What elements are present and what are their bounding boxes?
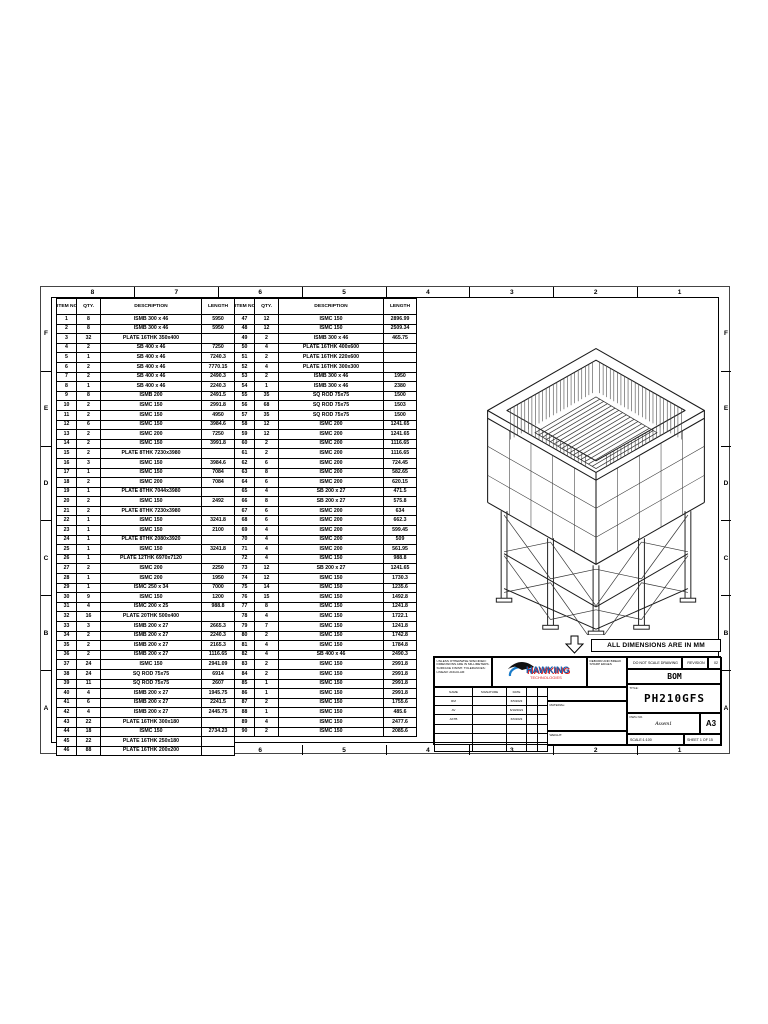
bom-cell-qty: 1 (77, 535, 101, 545)
title-block: UNLESS OTHERWISE SPECIFIED: DIMENSIONS A… (433, 656, 721, 745)
bom-cell-item: 72 (235, 554, 255, 564)
bom-cell-qty: 6 (77, 420, 101, 430)
weight-cell: WEIGHT: (547, 731, 627, 746)
zone-label: 4 (387, 287, 471, 297)
sign-cell (473, 733, 507, 742)
bom-cell-qty: 1 (77, 545, 101, 555)
bom-row: 814ISMC 1501784.8 (235, 641, 417, 651)
bom-cell-qty: 1 (77, 468, 101, 478)
bom-cell-length: 2665.3 (202, 622, 235, 632)
bom-cell-item: 70 (235, 535, 255, 545)
bom-cell-desc: PLATE 8THK 7230x3980 (101, 449, 202, 459)
bom-cell-qty: 14 (255, 583, 279, 593)
bom-cell-qty: 2 (77, 478, 101, 488)
base-plate (588, 631, 603, 635)
bom-cell-desc: PLATE 16THK 300x180 (101, 717, 202, 727)
bom-cell-item: 38 (57, 669, 77, 679)
drawing-line (546, 404, 607, 440)
bom-cell-length: 485.6 (384, 708, 417, 718)
zone-label: 7 (135, 287, 219, 297)
bom-cell-length: 561.95 (384, 545, 417, 555)
bom-cell-qty: 68 (255, 401, 279, 411)
bom-cell-desc: PLATE 16THK 220x600 (279, 353, 384, 363)
bom-cell-length: 2492 (202, 497, 235, 507)
bom-cell-length: 988.8 (384, 554, 417, 564)
base-plate (496, 598, 511, 602)
bom-cell-desc: ISMB 200 x 27 (101, 650, 202, 660)
bom-cell-length: 634 (384, 506, 417, 516)
bom-cell-item: 78 (235, 612, 255, 622)
bom-cell-desc: ISMC 150 (279, 631, 384, 641)
bom-row: 342ISMB 200 x 272240.3 (57, 631, 235, 641)
bom-cell-desc: ISMC 150 (279, 583, 384, 593)
bom-cell-item: 87 (235, 698, 255, 708)
bom-cell-desc: ISMB 200 x 27 (101, 689, 202, 699)
bom-cell-length: 1950 (202, 574, 235, 584)
bom-cell-qty: 6 (255, 506, 279, 516)
sign-cell (538, 715, 548, 724)
bom-cell-item: 37 (57, 660, 77, 670)
drawing-line (504, 589, 596, 630)
bom-row: 832ISMC 1502991.8 (235, 660, 417, 670)
bom-cell-length: 1755.6 (384, 698, 417, 708)
bom-cell-qty: 15 (255, 593, 279, 603)
bom-cell-desc: ISMB 300 x 46 (279, 334, 384, 344)
sign-cell (538, 706, 548, 715)
zone-label: 5 (303, 745, 387, 755)
bom-cell-item: 63 (235, 468, 255, 478)
bom-row: 842ISMC 1502991.8 (235, 669, 417, 679)
drawing-line (592, 431, 653, 467)
bom-cell-length: 2240.3 (202, 382, 235, 392)
sign-cell (473, 706, 507, 715)
bom-cell-qty: 4 (77, 602, 101, 612)
bom-cell-length: 7240.3 (202, 353, 235, 363)
bom-row: 626ISMC 200724.45 (235, 458, 417, 468)
bom-cell-length: 1950 (384, 372, 417, 382)
zone-label: 5 (303, 287, 387, 297)
bom-cell-item: 9 (57, 391, 77, 401)
bom-cell-desc: ISMC 150 (101, 410, 202, 420)
sign-date: 6/6/2023 (507, 715, 527, 724)
bom-cell-qty: 4 (255, 612, 279, 622)
bom-cell-desc: ISMB 300 x 46 (101, 315, 202, 325)
bom-cell-qty: 1 (77, 574, 101, 584)
bom-row: 163ISMC 1503984.6 (57, 458, 235, 468)
bom-cell-qty: 2 (77, 449, 101, 459)
bom-row: 541ISMB 300 x 462380 (235, 382, 417, 392)
dwg-no-cell: DWG NO. Assem1 (627, 713, 700, 734)
bom-cell-item: 33 (57, 622, 77, 632)
bom-cell-qty: 4 (255, 362, 279, 372)
bom-cell-length: 1116.65 (202, 650, 235, 660)
bom-cell-qty: 2 (77, 430, 101, 440)
sign-col-header: DATE (507, 688, 527, 697)
bom-cell-qty: 6 (255, 458, 279, 468)
bom-cell-item: 42 (57, 708, 77, 718)
bom-cell-desc: SQ ROD 75x75 (279, 391, 384, 401)
bom-cell-length: 724.45 (384, 458, 417, 468)
sheet-text: SHEET 1 OF 15 (684, 734, 722, 746)
bom-cell-qty: 4 (255, 554, 279, 564)
bom-row: 352ISMB 200 x 272165.3 (57, 641, 235, 651)
bom-cell-item: 40 (57, 689, 77, 699)
col-description: DESCRIPTION (279, 299, 384, 315)
drawing-line (504, 542, 550, 552)
bom-cell-length (202, 487, 235, 497)
bom-cell-item: 75 (235, 583, 255, 593)
sign-name (435, 724, 473, 733)
bom-cell-desc: ISMC 150 (279, 324, 384, 334)
bom-cell-item: 66 (235, 497, 255, 507)
bom-cell-item: 82 (235, 650, 255, 660)
sign-name: AKTB (435, 715, 473, 724)
bom-cell-length: 2445.75 (202, 708, 235, 718)
bom-cell-item: 21 (57, 506, 77, 516)
title-label: TITLE: (630, 686, 639, 690)
bom-cell-length: 1241.8 (384, 602, 417, 612)
drawing-line (562, 413, 623, 449)
bom-cell-qty: 1 (77, 382, 101, 392)
bom-cell-item: 32 (57, 612, 77, 622)
bom-cell-item: 90 (235, 727, 255, 737)
bom-row: 512PLATE 16THK 220x600 (235, 353, 417, 363)
drawing-line (641, 542, 687, 552)
bom-cell-desc: PLATE 16THK 200x200 (101, 746, 202, 756)
bom-cell-desc: ISMC 200 (279, 468, 384, 478)
bom-row: 261PLATE 12THK 6970x7120 (57, 554, 235, 564)
bom-cell-desc: ISMC 200 (101, 574, 202, 584)
bom-cell-qty: 4 (255, 641, 279, 651)
bom-cell-item: 61 (235, 449, 255, 459)
bom-cell-length: 2477.6 (384, 717, 417, 727)
bom-cell-item: 41 (57, 698, 77, 708)
base-plate (543, 625, 558, 629)
bom-row: 81SB 400 x 462240.3 (57, 382, 235, 392)
bom-cell-desc: ISMC 150 (101, 593, 202, 603)
bom-cell-desc: ISMC 150 (101, 420, 202, 430)
bom-cell-length: 509 (384, 535, 417, 545)
bom-cell-length: 599.45 (384, 526, 417, 536)
drawing-line (551, 583, 596, 635)
bom-row: 126ISMC 1503984.6 (57, 420, 235, 430)
sign-cell (527, 733, 538, 742)
bom-row: 291ISMC 250 x 347000 (57, 583, 235, 593)
bom-cell-item: 29 (57, 583, 77, 593)
bom-cell-length: 2991.8 (202, 401, 235, 411)
bom-cell-item: 44 (57, 727, 77, 737)
bom-row: 314ISMC 200 x 25988.8 (57, 602, 235, 612)
sign-name: AV (435, 706, 473, 715)
bom-cell-item: 89 (235, 717, 255, 727)
bom-cell-length: 582.65 (384, 468, 417, 478)
bom-cell-item: 5 (57, 353, 77, 363)
isometric-structure-drawing (461, 335, 731, 635)
bom-cell-desc: PLATE 16THK 300x300 (279, 362, 384, 372)
bom-cell-qty: 12 (255, 430, 279, 440)
bom-cell-desc: ISMB 200 x 27 (101, 708, 202, 718)
drawing-line (596, 569, 641, 579)
bom-cell-item: 19 (57, 487, 77, 497)
bom-row: 7615ISMC 1501492.8 (235, 593, 417, 603)
projection-arrow-icon (563, 635, 587, 655)
bom-cell-length: 2490.3 (202, 372, 235, 382)
bom-cell-qty: 6 (77, 698, 101, 708)
bom-cell-qty: 2 (77, 631, 101, 641)
bom-row: 4712ISMC 1502896.99 (235, 315, 417, 325)
bom-cell-desc: ISMC 150 (279, 689, 384, 699)
bom-cell-item: 85 (235, 679, 255, 689)
bom-cell-item: 11 (57, 410, 77, 420)
bom-row: 851ISMC 1502991.8 (235, 679, 417, 689)
bom-cell-desc: PLATE 8THK 2080x3920 (101, 535, 202, 545)
bom-cell-item: 26 (57, 554, 77, 564)
bom-cell-desc: PLATE 16THK 250x180 (101, 737, 202, 747)
col-length: LENGTH (384, 299, 417, 315)
bom-cell-desc: ISMC 150 (279, 669, 384, 679)
bom-cell-desc: SB 400 x 46 (101, 343, 202, 353)
bom-cell-length: 3241.8 (202, 545, 235, 555)
drawing-line (577, 422, 638, 458)
bom-cell-item: 35 (57, 641, 77, 651)
bom-cell-item: 56 (235, 401, 255, 411)
sign-cell (538, 697, 548, 706)
drawing-line (596, 589, 688, 630)
bom-cell-qty: 2 (255, 698, 279, 708)
bom-cell-desc: ISMC 200 (101, 564, 202, 574)
bom-cell-desc: ISMC 200 (279, 535, 384, 545)
bom-cell-desc: SB 400 x 46 (101, 362, 202, 372)
bom-cell-item: 50 (235, 343, 255, 353)
bom-cell-qty: 2 (255, 372, 279, 382)
bom-cell-length: 2734.23 (202, 727, 235, 737)
bom-row: 676ISMC 200634 (235, 506, 417, 516)
drawing-line (596, 554, 688, 607)
bom-cell-length: 1241.8 (384, 622, 417, 632)
bom-cell-length: 2380 (384, 382, 417, 392)
bom-cell-qty: 24 (77, 660, 101, 670)
bom-cell-qty: 11 (77, 679, 101, 689)
bom-cell-item: 18 (57, 478, 77, 488)
scale-text: SCALE:1:100 (627, 734, 684, 746)
bom-cell-desc: ISMC 150 (101, 497, 202, 507)
bom-row: 3824SQ ROD 75x756914 (57, 669, 235, 679)
bom-cell-item: 71 (235, 545, 255, 555)
bom-cell-length: 2509.34 (384, 324, 417, 334)
base-plate (680, 598, 695, 602)
bom-row: 668SB 200 x 27575.8 (235, 497, 417, 507)
bom-row: 42SB 400 x 467250 (57, 343, 235, 353)
bom-cell-item: 28 (57, 574, 77, 584)
bom-cell-desc: SB 400 x 46 (101, 372, 202, 382)
bom-row: 784ISMC 1501722.1 (235, 612, 417, 622)
bom-cell-desc: ISMC 200 x 25 (101, 602, 202, 612)
bom-cell-desc: ISMC 150 (279, 717, 384, 727)
bom-row: 72SB 400 x 462490.3 (57, 372, 235, 382)
bom-row: 724ISMC 150988.8 (235, 554, 417, 564)
bom-cell-qty: 4 (255, 650, 279, 660)
bom-row: 7514ISMC 1501235.6 (235, 583, 417, 593)
zone-label: F (41, 297, 51, 372)
sign-date (507, 733, 527, 742)
bom-cell-item: 30 (57, 593, 77, 603)
paper-size: A3 (700, 713, 722, 734)
drawing-line (641, 583, 687, 593)
sign-row: RM6/5/2023 (435, 697, 548, 706)
base-plate (634, 625, 649, 629)
bom-row: 62SB 400 x 467770.15 (57, 362, 235, 372)
bom-cell-qty: 2 (77, 564, 101, 574)
bom-cell-qty: 16 (77, 612, 101, 622)
bom-cell-item: 52 (235, 362, 255, 372)
bom-cell-qty: 4 (255, 343, 279, 353)
bom-row: 424ISMB 200 x 272445.75 (57, 708, 235, 718)
bom-cell-length: 2100 (202, 526, 235, 536)
bom-cell-qty: 2 (255, 449, 279, 459)
logo-text: HAWKING (526, 665, 570, 675)
bom-cell-item: 2 (57, 324, 77, 334)
bom-row: 7412ISMC 1501730.3 (235, 574, 417, 584)
bom-cell-qty: 3 (77, 458, 101, 468)
bom-cell-length: 471.5 (384, 487, 417, 497)
bom-row: 4322PLATE 16THK 300x180 (57, 717, 235, 727)
bom-cell-length: 1730.3 (384, 574, 417, 584)
bom-row: 778ISMC 1501241.8 (235, 602, 417, 612)
hawking-logo: HAWKING HAWKING TECHNOLOGIES (492, 657, 587, 687)
bom-cell-item: 10 (57, 401, 77, 411)
bom-cell-qty: 8 (255, 468, 279, 478)
zone-label: 1 (638, 745, 721, 755)
zone-label: A (721, 671, 731, 745)
sign-date (507, 724, 527, 733)
bom-row: 3216PLATE 20THK 500x400 (57, 612, 235, 622)
bom-row: 5535SQ ROD 75x751500 (235, 391, 417, 401)
bom-row: 416ISMB 200 x 272241.5 (57, 698, 235, 708)
bom-cell-qty: 4 (255, 526, 279, 536)
bom-cell-length: 2165.3 (202, 641, 235, 651)
bom-cell-qty: 2 (77, 343, 101, 353)
sign-cell (527, 742, 538, 751)
bom-cell-desc: SQ ROD 75x75 (101, 669, 202, 679)
bom-cell-desc: ISMC 150 (279, 641, 384, 651)
bom-cell-length: 575.8 (384, 497, 417, 507)
bom-cell-length: 662.3 (384, 516, 417, 526)
bom-cell-item: 76 (235, 593, 255, 603)
drawing-line (551, 569, 596, 579)
bom-cell-desc: SB 400 x 46 (101, 353, 202, 363)
bom-row: 98ISMB 2002491.5 (57, 391, 235, 401)
bom-cell-length: 3984.6 (202, 420, 235, 430)
bom-row: 861ISMC 1502991.8 (235, 689, 417, 699)
bom-cell-qty: 6 (255, 516, 279, 526)
bom-cell-length: 2250 (202, 564, 235, 574)
bom-table-left: ITEM NO. QTY. DESCRIPTION LENGTH 18ISMB … (56, 298, 235, 756)
bom-cell-desc: ISMC 150 (279, 612, 384, 622)
bom-cell-item: 15 (57, 449, 77, 459)
bom-cell-desc: ISMC 200 (101, 430, 202, 440)
bom-row: 5668SQ ROD 75x751503 (235, 401, 417, 411)
drawing-sheet: 87654321 87654321 FEDCBA FEDCBA ITEM NO.… (40, 286, 730, 754)
bom-row: 802ISMC 1501742.8 (235, 631, 417, 641)
bom-cell-qty: 9 (77, 593, 101, 603)
bom-cell-length: 2991.8 (384, 660, 417, 670)
sign-col-header (527, 688, 538, 697)
drawing-line (585, 426, 646, 462)
bom-cell-qty: 22 (77, 717, 101, 727)
bom-cell-desc: ISMC 150 (279, 593, 384, 603)
bom-cell-desc: ISMC 150 (279, 727, 384, 737)
bom-cell-item: 77 (235, 602, 255, 612)
bom-cell-desc: ISMC 200 (279, 449, 384, 459)
bom-cell-length: 620.15 (384, 478, 417, 488)
zone-label: D (41, 447, 51, 522)
bom-cell-length: 988.8 (202, 602, 235, 612)
bom-cell-desc: ISMC 150 (279, 622, 384, 632)
col-qty: QTY. (77, 299, 101, 315)
bom-cell-item: 27 (57, 564, 77, 574)
sign-cell (527, 697, 538, 706)
sign-row (435, 724, 548, 733)
bom-row: 881ISMC 150485.6 (235, 708, 417, 718)
bom-cell-item: 20 (57, 497, 77, 507)
weight-label: WEIGHT: (550, 733, 563, 737)
bom-cell-desc: SQ ROD 75x75 (101, 679, 202, 689)
bom-cell-length: 2490.3 (384, 650, 417, 660)
zone-label: 1 (638, 287, 721, 297)
bom-row: 3724ISMC 1502941.09 (57, 660, 235, 670)
drawing-title: PH210GFS (628, 685, 721, 712)
bom-cell-qty: 2 (255, 334, 279, 344)
bom-cell-item: 16 (57, 458, 77, 468)
zone-label: 2 (554, 745, 638, 755)
zone-label: 3 (470, 287, 554, 297)
bom-cell-item: 34 (57, 631, 77, 641)
drawing-line (543, 401, 604, 437)
bom-cell-length: 1116.65 (384, 439, 417, 449)
bom-cell-item: 6 (57, 362, 77, 372)
bom-row: 654SB 200 x 27471.5 (235, 487, 417, 497)
material-cell: MATERIAL: (547, 701, 627, 731)
bom-cell-desc: ISMC 150 (279, 602, 384, 612)
bom-cell-length: 1784.8 (384, 641, 417, 651)
bom-cell-length: 7770.15 (202, 362, 235, 372)
bom-cell-item: 1 (57, 315, 77, 325)
bom-cell-item: 68 (235, 516, 255, 526)
bom-cell-item: 54 (235, 382, 255, 392)
bom-cell-length: 2607 (202, 679, 235, 689)
bom-cell-desc: ISMB 200 x 27 (101, 698, 202, 708)
col-item-no: ITEM NO. (235, 299, 255, 315)
bom-cell-length: 7084 (202, 468, 235, 478)
bom-cell-qty: 8 (255, 497, 279, 507)
bom-cell-qty: 2 (255, 660, 279, 670)
bom-cell-desc: ISMB 300 x 46 (101, 324, 202, 334)
bom-cell-item: 57 (235, 410, 255, 420)
bom-cell-desc: ISMC 150 (101, 660, 202, 670)
bom-cell-length: 7250 (202, 343, 235, 353)
bom-row: 612ISMC 2001116.65 (235, 449, 417, 459)
bom-cell-item: 69 (235, 526, 255, 536)
sign-cell (473, 742, 507, 751)
title-cell: TITLE: PH210GFS (627, 684, 722, 713)
bom-cell-length: 2085.6 (384, 727, 417, 737)
bom-row: 3911SQ ROD 75x752607 (57, 679, 235, 689)
bom-cell-item: 22 (57, 516, 77, 526)
bom-cell-qty: 2 (77, 439, 101, 449)
sign-row: AV6/10/2021 (435, 706, 548, 715)
bom-cell-qty: 4 (255, 717, 279, 727)
zone-strip-left: FEDCBA (41, 297, 51, 745)
